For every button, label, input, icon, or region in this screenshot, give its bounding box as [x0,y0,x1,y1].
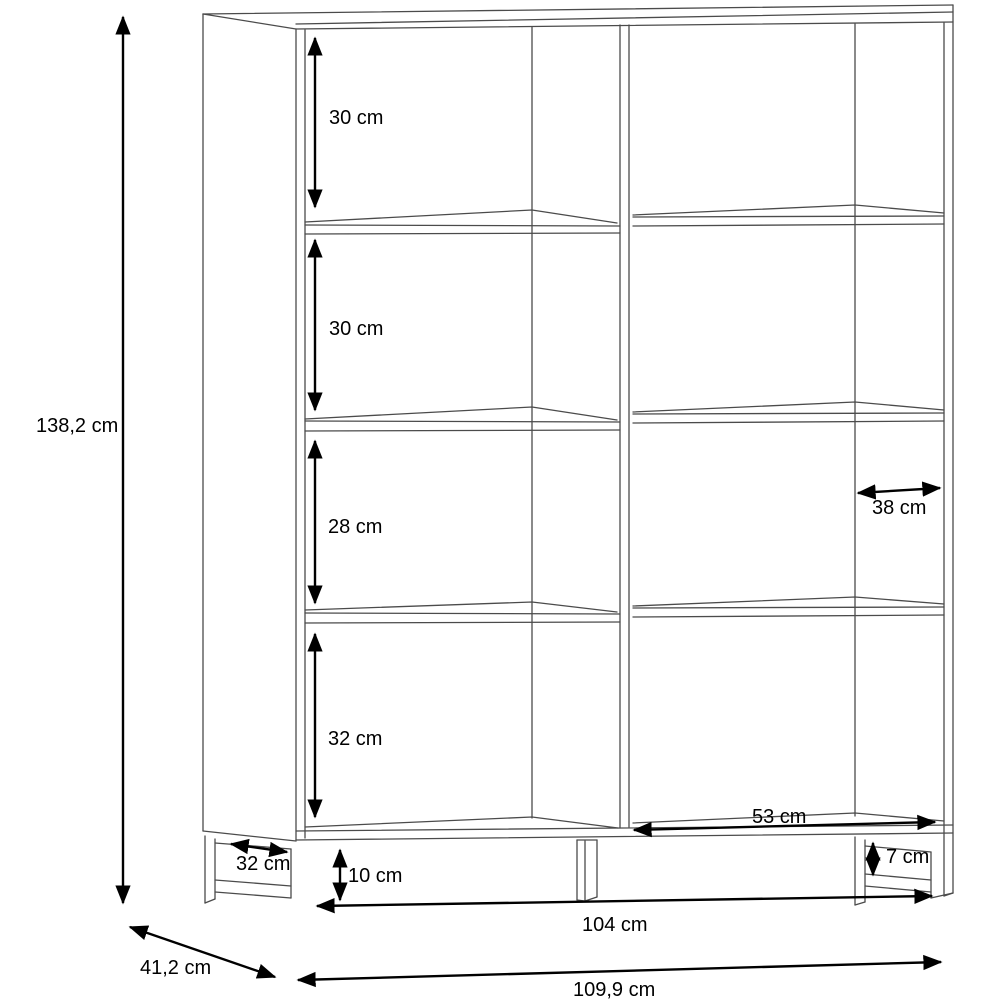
label-inner-width: 104 cm [582,914,648,936]
diagram-canvas: 138,2 cm 30 cm 30 cm 28 cm 32 cm 38 cm 5… [0,0,1000,1000]
label-compartment-bottom: 32 cm [328,728,382,750]
label-interior-depth: 38 cm [872,497,926,519]
label-right-foot-height: 7 cm [886,846,929,868]
shelves [305,205,944,623]
label-overall-width: 109,9 cm [573,979,655,1000]
label-compartment-top: 30 cm [329,107,383,129]
label-base-height: 10 cm [348,865,402,887]
cabinet-dimension-diagram: 138,2 cm 30 cm 30 cm 28 cm 32 cm 38 cm 5… [0,0,1000,1000]
dim-arrow-overall-width [298,962,941,980]
dimension-labels: 138,2 cm 30 cm 30 cm 28 cm 32 cm 38 cm 5… [36,107,929,1000]
label-total-height: 138,2 cm [36,415,118,437]
dim-arrow-interior-depth [858,488,940,493]
label-compartment-third: 28 cm [328,516,382,538]
label-bottom-right-opening: 53 cm [752,806,806,828]
dim-arrow-inner-width [317,896,932,906]
label-overall-depth: 41,2 cm [140,957,211,979]
base-feet [205,836,953,905]
label-foot-depth: 32 cm [236,853,290,875]
label-compartment-second: 30 cm [329,318,383,340]
